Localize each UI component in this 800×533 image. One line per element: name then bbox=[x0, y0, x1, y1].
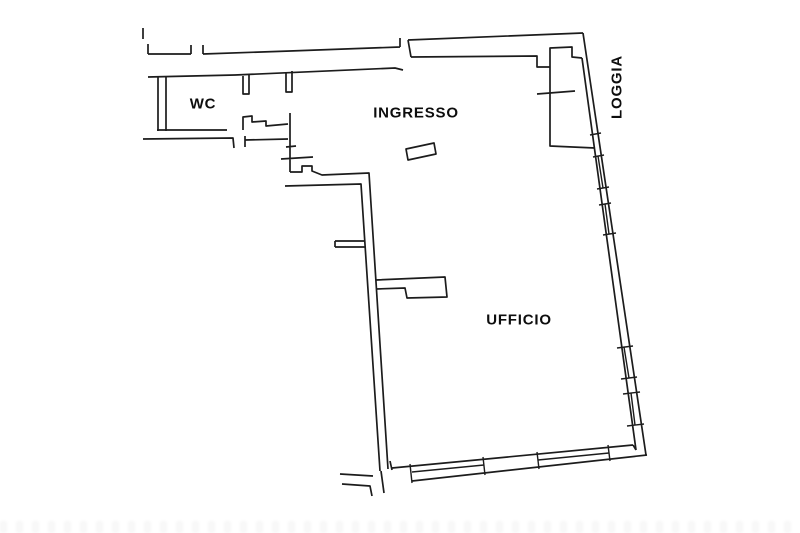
room-label-loggia: LOGGIA bbox=[609, 55, 626, 119]
upper-boundary-walls bbox=[143, 28, 400, 54]
room-label-wc: WC bbox=[190, 96, 217, 113]
room-label-ingresso: INGRESSO bbox=[373, 105, 459, 122]
room-label-ufficio: UFFICIO bbox=[486, 312, 552, 329]
floor-plan-drawing bbox=[0, 0, 800, 533]
ingresso-pillar bbox=[406, 143, 436, 160]
partition-wall bbox=[285, 166, 447, 496]
floor-plan: WC INGRESSO UFFICIO LOGGIA bbox=[0, 0, 800, 533]
wc-walls bbox=[143, 68, 403, 172]
top-wall bbox=[408, 33, 595, 148]
bottom-wall bbox=[392, 445, 647, 483]
